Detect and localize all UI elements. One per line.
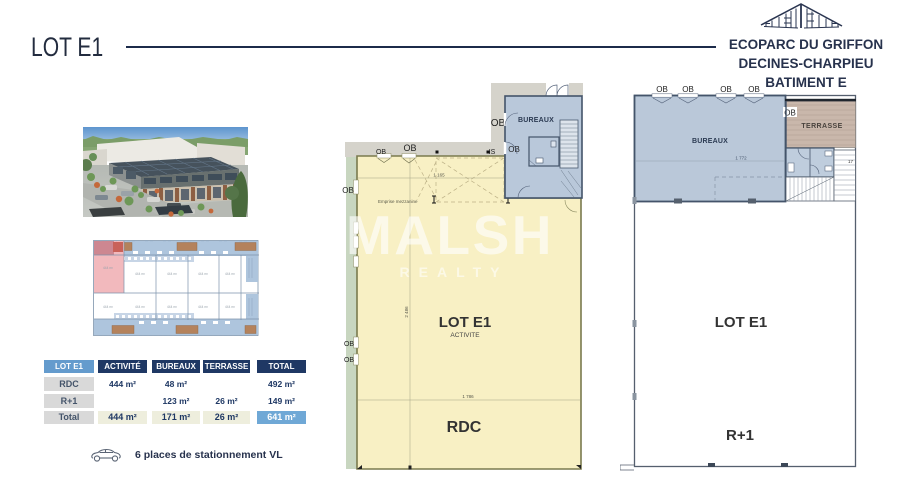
- svg-text:IS: IS: [489, 149, 496, 156]
- svg-text:2 486: 2 486: [404, 306, 409, 318]
- svg-text:BUREAUX: BUREAUX: [692, 138, 728, 145]
- svg-text:LOT E1: LOT E1: [715, 314, 768, 331]
- svg-text:R+1: R+1: [726, 427, 754, 444]
- svg-text:444 m²: 444 m²: [135, 305, 145, 309]
- svg-text:1 786: 1 786: [462, 394, 474, 399]
- svg-text:OB: OB: [376, 149, 386, 156]
- svg-text:1 772: 1 772: [735, 156, 747, 161]
- svg-text:17: 17: [848, 159, 854, 164]
- svg-text:OB: OB: [342, 186, 354, 195]
- svg-text:OB: OB: [344, 341, 354, 348]
- svg-text:TERRASSE: TERRASSE: [801, 123, 842, 130]
- svg-text:OB: OB: [491, 118, 506, 129]
- svg-text:444 m²: 444 m²: [103, 266, 113, 270]
- svg-text:ACTIVITE: ACTIVITE: [450, 332, 480, 339]
- svg-text:444 m²: 444 m²: [135, 272, 145, 276]
- svg-text:444 m²: 444 m²: [225, 272, 235, 276]
- svg-text:444 m²: 444 m²: [225, 305, 235, 309]
- svg-text:1 165: 1 165: [433, 173, 445, 178]
- svg-text:OB: OB: [656, 85, 668, 94]
- svg-text:444 m²: 444 m²: [198, 272, 208, 276]
- svg-text:444 m²: 444 m²: [198, 305, 208, 309]
- svg-text:OB: OB: [682, 85, 694, 94]
- svg-text:444 m²: 444 m²: [167, 305, 177, 309]
- svg-text:OB: OB: [748, 85, 760, 94]
- svg-text:OB: OB: [720, 85, 732, 94]
- svg-text:LOT E1: LOT E1: [439, 314, 492, 331]
- svg-text:BUREAUX: BUREAUX: [518, 117, 554, 124]
- svg-text:OB: OB: [403, 143, 416, 153]
- svg-text:OB: OB: [344, 357, 354, 364]
- svg-text:RDC: RDC: [447, 419, 482, 436]
- svg-text:444 m²: 444 m²: [167, 272, 177, 276]
- svg-text:444 m²: 444 m²: [103, 305, 113, 309]
